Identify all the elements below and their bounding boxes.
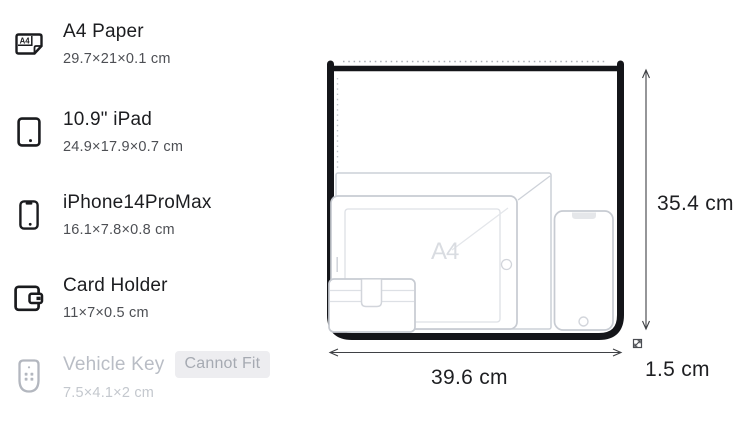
list-item-iphone: iPhone14ProMax 16.1×7.8×0.8 cm: [8, 191, 212, 239]
item-title: iPhone14ProMax: [63, 191, 212, 215]
item-dimensions: 29.7×21×0.1 cm: [63, 50, 171, 68]
depth-dimension-label: 1.5 cm: [645, 358, 710, 382]
ipad-icon: [8, 117, 50, 147]
card-holder-icon: [8, 285, 50, 312]
svg-text:A4: A4: [20, 36, 31, 45]
list-item-card-holder: Card Holder 11×7×0.5 cm: [8, 274, 168, 322]
item-title: 10.9" iPad: [63, 108, 183, 132]
vehicle-key-icon: [8, 359, 50, 394]
height-dimension-arrow: [643, 70, 650, 329]
item-dimensions: 7.5×4.1×2 cm: [63, 384, 270, 402]
list-item-a4-paper: A4 A4 Paper 29.7×21×0.1 cm: [8, 20, 171, 68]
iphone-icon: [8, 200, 50, 230]
item-dimensions: 24.9×17.9×0.7 cm: [63, 138, 183, 156]
card-holder-outline: [329, 279, 415, 332]
item-title: Card Holder: [63, 274, 168, 298]
width-dimension-label: 39.6 cm: [431, 366, 508, 390]
depth-icon: [634, 340, 642, 348]
a4-watermark: A4: [431, 238, 458, 266]
item-title: A4 Paper: [63, 20, 171, 44]
cannot-fit-badge: Cannot Fit: [175, 351, 271, 378]
iphone-outline: [555, 211, 614, 330]
item-dimensions: 16.1×7.8×0.8 cm: [63, 221, 212, 239]
size-comparison-infographic: A4 35.4 cm 39.6 cm 1.5 cm A4 A4 Paper 29…: [0, 0, 750, 426]
iphone-notch: [572, 213, 596, 220]
item-dimensions: 11×7×0.5 cm: [63, 304, 168, 322]
width-dimension-arrow: [330, 349, 621, 356]
height-dimension-label: 35.4 cm: [657, 192, 734, 216]
card-holder-strap: [362, 280, 382, 307]
a4-paper-icon: A4: [8, 33, 50, 55]
list-item-vehicle-key: Vehicle Key Cannot Fit 7.5×4.1×2 cm: [8, 351, 270, 402]
list-item-ipad: 10.9" iPad 24.9×17.9×0.7 cm: [8, 108, 183, 156]
item-title: Vehicle Key: [63, 353, 165, 377]
